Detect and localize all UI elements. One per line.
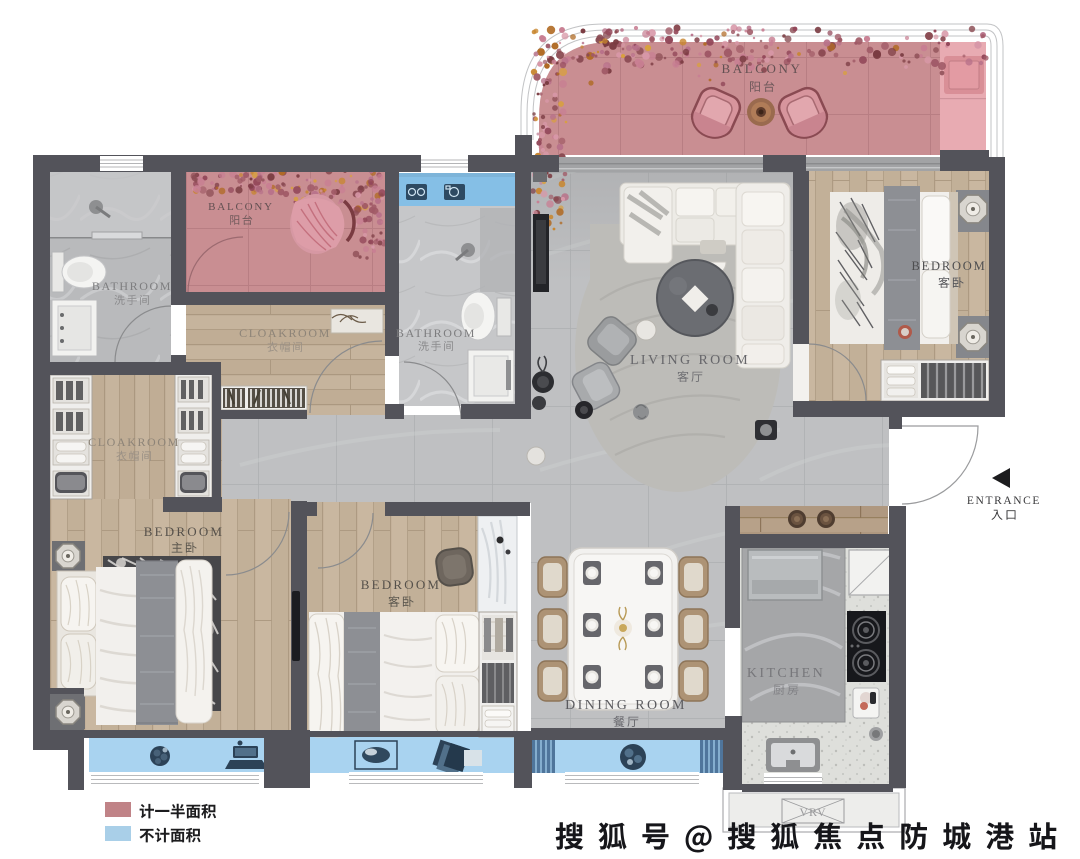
svg-text:BEDROOM: BEDROOM xyxy=(911,259,986,273)
svg-text:CLOAKROOM: CLOAKROOM xyxy=(239,326,331,340)
svg-text:VRV: VRV xyxy=(799,805,826,819)
svg-text:ENTRANCE: ENTRANCE xyxy=(967,495,1041,507)
svg-text:BEDROOM: BEDROOM xyxy=(361,577,441,592)
svg-text:LIVING ROOM: LIVING ROOM xyxy=(630,353,750,368)
svg-text:BATHROOM: BATHROOM xyxy=(396,326,476,340)
svg-text:BALCONY: BALCONY xyxy=(721,61,802,76)
svg-text:DINING ROOM: DINING ROOM xyxy=(565,698,687,713)
svg-text:BEDROOM: BEDROOM xyxy=(144,524,224,539)
svg-text:BALCONY: BALCONY xyxy=(208,201,274,213)
svg-text:KITCHEN: KITCHEN xyxy=(747,666,825,681)
svg-text:CLOAKROOM: CLOAKROOM xyxy=(88,435,180,449)
svg-text:BATHROOM: BATHROOM xyxy=(92,279,172,293)
